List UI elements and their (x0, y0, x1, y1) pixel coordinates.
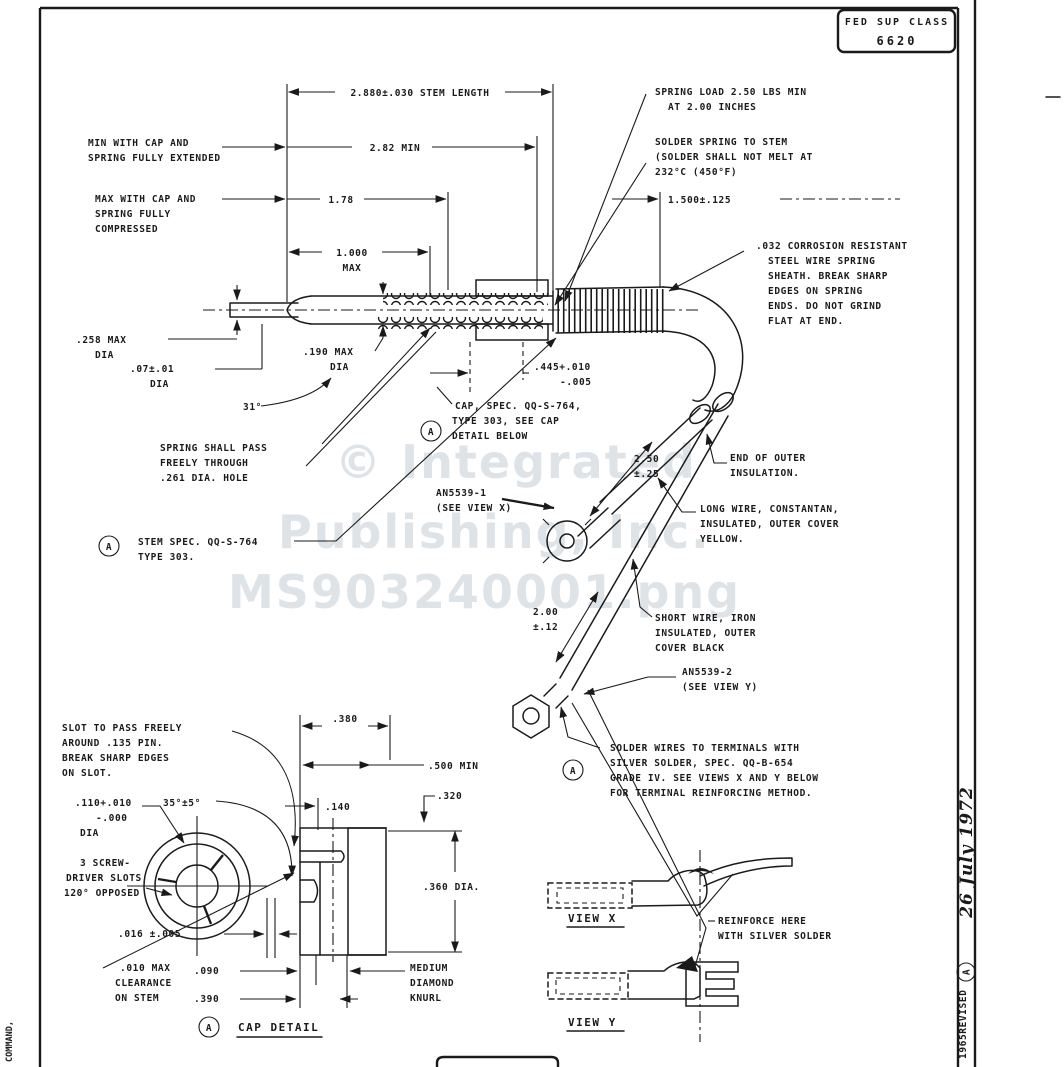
solder-wires-note: A SOLDER WIRES TO TERMINALS WITH SILVER … (561, 707, 819, 799)
note-long-wire-2: INSULATED, OUTER COVER (700, 519, 839, 530)
note-an5539-1-a: AN5539-1 (436, 488, 487, 499)
revision-text: 1965REVISED (958, 989, 969, 1059)
view-y-drawing (548, 956, 738, 1006)
cap-screwdriver-2: DRIVER SLOTS (66, 873, 142, 884)
note-solder-spring-1: SOLDER SPRING TO STEM (655, 137, 788, 148)
title-block: FED SUP CLASS 6620 (838, 10, 955, 52)
dim-max-compressed: 1.78 (328, 195, 353, 206)
flag-a-cap-spec: A (428, 427, 434, 438)
note-cap-spec-3: DETAIL BELOW (452, 431, 528, 442)
revision-date: 26 July 1972 (957, 786, 977, 919)
fed-sup-class-value: 6620 (877, 34, 918, 48)
dim-cap-travel-value: 1.000 (336, 248, 368, 259)
cap-slot-angle: 35°±5° (163, 798, 201, 809)
note-sheath-3: SHEATH. BREAK SHARP (768, 271, 888, 282)
terminal-an5539-2 (513, 684, 568, 738)
note-solder-wires-3: GRADE IV. SEE VIEWS X AND Y BELOW (610, 773, 819, 784)
spring-coils-bottom (377, 317, 543, 329)
cap-dim-360: .360 DIA. (423, 882, 480, 893)
note-max-cap-2: SPRING FULLY (95, 209, 171, 220)
left-margin-vertical-text: COMMAND, (5, 1021, 15, 1062)
dim-wire-short-1: 2.00 (533, 607, 558, 618)
note-sheath-5: ENDS. DO NOT GRIND (768, 301, 882, 312)
note-short-wire-1: SHORT WIRE, IRON (655, 613, 756, 624)
view-y-label: VIEW Y (568, 1016, 617, 1029)
note-solder-wires-4: FOR TERMINAL REINFORCING METHOD. (610, 788, 812, 799)
note-solder-wires-1: SOLDER WIRES TO TERMINALS WITH (610, 743, 800, 754)
note-min-cap-1: MIN WITH CAP AND (88, 138, 189, 149)
cap-hole-dia-1: .110+.010 (75, 798, 132, 809)
dim-tip-dia-1: .258 MAX (76, 335, 127, 346)
note-end-insulation-2: INSULATION. (730, 468, 800, 479)
dim-min-extended: 2.82 MIN (370, 143, 421, 154)
cap-slot-note-1: SLOT TO PASS FREELY (62, 723, 182, 734)
note-min-cap-2: SPRING FULLY EXTENDED (88, 153, 221, 164)
cap-dim-390: .390 (194, 994, 219, 1005)
note-cap-spec-2: TYPE 303, SEE CAP (452, 416, 559, 427)
cap-dim-500: .500 MIN (428, 761, 479, 772)
cap-slot-width: .016 ±.005 (118, 929, 181, 940)
note-long-wire-1: LONG WIRE, CONSTANTAN, (700, 504, 839, 515)
dim-bend-angle: 31° (243, 402, 262, 413)
note-short-wire-2: INSULATED, OUTER (655, 628, 756, 639)
note-long-wire-3: YELLOW. (700, 534, 744, 545)
cap-clearance-2: CLEARANCE (115, 978, 172, 989)
sheath-bend-inner (663, 331, 715, 401)
cap-screwdriver-3: 120° OPPOSED (64, 888, 140, 899)
note-cap-spec-1: CAP, SPEC. QQ-S-764, (455, 401, 581, 412)
cap-section-view (300, 818, 386, 962)
note-solder-spring-2: (SOLDER SHALL NOT MELT AT (655, 152, 813, 163)
note-an5539-2-a: AN5539-2 (682, 667, 733, 678)
note-solder-wires-2: SILVER SOLDER, SPEC. QQ-B-654 (610, 758, 793, 769)
cap-slot-note-3: BREAK SHARP EDGES (62, 753, 169, 764)
dim-cap-travel-qual: MAX (343, 263, 362, 274)
note-short-wire-3: COVER BLACK (655, 643, 725, 654)
cap-knurl-note-2: DIAMOND (410, 978, 454, 989)
note-max-cap-1: MAX WITH CAP AND (95, 194, 196, 205)
bottom-partial-box (437, 1057, 558, 1067)
dim-sheath-position: 1.500±.125 (668, 195, 731, 206)
cap-hole-dia-3: DIA (80, 828, 99, 839)
dim-body-dia-2: DIA (330, 362, 349, 373)
note-stem-spec-1: STEM SPEC. QQ-S-764 (138, 537, 258, 548)
note-solder-spring-3: 232°C (450°F) (655, 167, 737, 178)
top-dimensions: 2.880±.030 STEM LENGTH 2.82 MIN 1.78 1.0… (222, 84, 900, 302)
note-end-insulation-1: END OF OUTER (730, 453, 806, 464)
cap-clearance-3: ON STEM (115, 993, 159, 1004)
note-an5539-2-b: (SEE VIEW Y) (682, 682, 758, 693)
cap-length-dimension: .445+.010 -.005 A CAP, SPEC. QQ-S-764, T… (421, 342, 592, 442)
cap-dim-090: .090 (194, 966, 219, 977)
note-sheath-1: .032 CORROSION RESISTANT (756, 241, 908, 252)
note-an5539-1-b: (SEE VIEW X) (436, 503, 512, 514)
dim-tip-dia-2: DIA (95, 350, 114, 361)
cap-detail: SLOT TO PASS FREELY AROUND .135 PIN. BRE… (62, 714, 480, 1037)
spring-coils-top (383, 293, 548, 305)
note-spring-pass-3: .261 DIA. HOLE (160, 473, 248, 484)
dim-wire-short-2: ±.12 (533, 622, 558, 633)
cap-screwdriver-1: 3 SCREW- (80, 858, 131, 869)
note-sheath-6: FLAT AT END. (768, 316, 844, 327)
dim-wire-long-2: ±.25 (634, 469, 659, 480)
dim-cap-length-1: .445+.010 (534, 362, 591, 373)
dim-cap-length-2: -.005 (560, 377, 592, 388)
dim-body-dia-1: .190 MAX (303, 347, 354, 358)
note-reinforce-1: REINFORCE HERE (718, 916, 806, 927)
cap-dim-140: .140 (325, 802, 350, 813)
flag-a-cap-detail: A (206, 1023, 212, 1034)
drawing-sheet: © Integrated Publishing, Inc. MS90324000… (0, 0, 1064, 1067)
cap-slot-note-4: ON SLOT. (62, 768, 113, 779)
note-spring-load-1: SPRING LOAD 2.50 LBS MIN (655, 87, 807, 98)
note-sheath-2: STEEL WIRE SPRING (768, 256, 875, 267)
cap-detail-title: CAP DETAIL (238, 1021, 319, 1034)
dim-small-dia-2: DIA (150, 379, 169, 390)
margin-texts: COMMAND, 1965REVISED A 26 July 1972 (5, 786, 977, 1062)
revision-flag-letter: A (962, 969, 973, 975)
cap-dim-380: .380 (332, 714, 357, 725)
note-spring-pass-1: SPRING SHALL PASS (160, 443, 267, 454)
fed-sup-class-label: FED SUP CLASS (845, 17, 949, 28)
note-spring-pass-2: FREELY THROUGH (160, 458, 248, 469)
note-sheath-4: EDGES ON SPRING (768, 286, 863, 297)
cap-slot-note-2: AROUND .135 PIN. (62, 738, 163, 749)
left-notes: MIN WITH CAP AND SPRING FULLY EXTENDED M… (88, 138, 221, 235)
note-spring-load-2: AT 2.00 INCHES (668, 102, 756, 113)
flag-a-solder: A (570, 766, 576, 777)
view-x-label: VIEW X (568, 912, 617, 925)
note-max-cap-3: COMPRESSED (95, 224, 158, 235)
cap-knurl-note-1: MEDIUM (410, 963, 448, 974)
cap-dim-320: .320 (437, 791, 462, 802)
cap-clearance-1: .010 MAX (120, 963, 171, 974)
view-x-drawing (548, 858, 792, 908)
note-stem-spec-2: TYPE 303. (138, 552, 195, 563)
watermark-line3: MS903240001.png (228, 565, 741, 619)
flag-a-stem-spec: A (106, 542, 112, 553)
note-reinforce-2: WITH SILVER SOLDER (718, 931, 832, 942)
cap-knurl-note-3: KNURL (410, 993, 442, 1004)
cap-hole-dia-2: -.000 (96, 813, 128, 824)
wire-spring-sheath (556, 289, 664, 333)
dim-stem-length: 2.880±.030 STEM LENGTH (350, 88, 489, 99)
dim-small-dia-1: .07±.01 (130, 364, 174, 375)
